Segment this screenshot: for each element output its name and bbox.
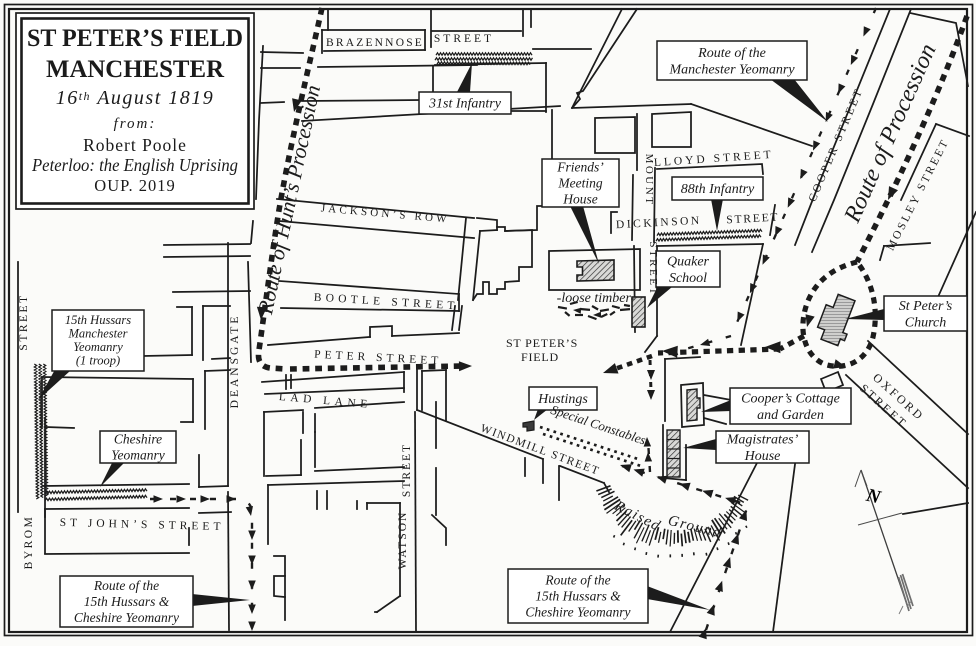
svg-text:15th Hussars &: 15th Hussars & [535, 589, 621, 604]
svg-text:88th Infantry: 88th Infantry [681, 182, 755, 197]
svg-text:STREET: STREET [647, 241, 659, 296]
svg-text:House: House [562, 192, 598, 207]
svg-text:BYROM: BYROM [23, 515, 35, 570]
svg-text:JACKSON’S ROW: JACKSON’S ROW [320, 202, 450, 225]
svg-text:-loose timber-: -loose timber- [557, 291, 636, 306]
svg-text:STREET: STREET [401, 443, 413, 497]
svg-text:Cooper’s Cottage: Cooper’s Cottage [741, 391, 840, 406]
svg-text:STREET: STREET [434, 33, 494, 45]
svg-text:Cheshire Yeomanry: Cheshire Yeomanry [525, 605, 630, 620]
svg-text:N: N [863, 485, 884, 509]
svg-text:Route of Procession: Route of Procession [839, 40, 941, 227]
svg-text:Cheshire: Cheshire [114, 432, 162, 447]
svg-text:Meeting: Meeting [557, 176, 602, 191]
svg-text:Cheshire Yeomanry: Cheshire Yeomanry [74, 610, 179, 625]
svg-text:Route of the: Route of the [697, 46, 766, 61]
svg-text:(1 troop): (1 troop) [76, 354, 120, 368]
svg-text:ST JOHN’S STREET: ST JOHN’S STREET [60, 517, 225, 533]
svg-text:WINDMILL STREET: WINDMILL STREET [479, 422, 602, 478]
svg-text:15th Hussars: 15th Hussars [65, 313, 131, 327]
svg-text:St Peter’s: St Peter’s [899, 299, 953, 314]
svg-text:Manchester: Manchester [67, 327, 127, 341]
svg-text:MANCHESTER: MANCHESTER [46, 56, 225, 83]
svg-text:DEANSGATE: DEANSGATE [229, 314, 241, 409]
svg-text:15th Hussars &: 15th Hussars & [84, 594, 170, 609]
svg-text:Raised: Raised [611, 498, 664, 535]
svg-text:Manchester Yeomanry: Manchester Yeomanry [668, 62, 795, 77]
svg-text:DICKINSON: DICKINSON [616, 215, 702, 231]
svg-text:Route of the: Route of the [93, 578, 159, 593]
svg-text:and Garden: and Garden [757, 408, 824, 423]
svg-text:FIELD: FIELD [521, 350, 559, 364]
svg-text:31st Infantry: 31st Infantry [428, 97, 502, 112]
svg-text:WATSON: WATSON [397, 511, 409, 570]
svg-text:School: School [669, 271, 707, 286]
svg-text:PETER STREET: PETER STREET [314, 349, 443, 368]
svg-text:ST PETER’S: ST PETER’S [506, 336, 578, 350]
svg-text:Yeomanry: Yeomanry [111, 448, 165, 463]
svg-text:Peterloo: the English Uprising: Peterloo: the English Uprising [31, 155, 238, 175]
svg-text:ST PETER’S FIELD: ST PETER’S FIELD [27, 25, 243, 52]
svg-text:Church: Church [905, 315, 946, 330]
svg-text:Route of the: Route of the [544, 573, 610, 588]
svg-text:BRAZENNOSE: BRAZENNOSE [326, 37, 424, 49]
svg-text:Friends’: Friends’ [556, 160, 604, 175]
svg-text:Robert Poole: Robert Poole [83, 135, 187, 155]
svg-text:Yeomanry: Yeomanry [73, 340, 123, 354]
svg-text:OUP. 2019: OUP. 2019 [94, 176, 175, 195]
svg-text:Quaker: Quaker [667, 254, 710, 269]
svg-text:from:: from: [114, 116, 157, 132]
svg-text:STREET: STREET [18, 293, 30, 350]
svg-text:MOUNT: MOUNT [643, 154, 655, 207]
svg-text:Magistrates’: Magistrates’ [726, 432, 799, 447]
svg-text:House: House [744, 449, 781, 464]
